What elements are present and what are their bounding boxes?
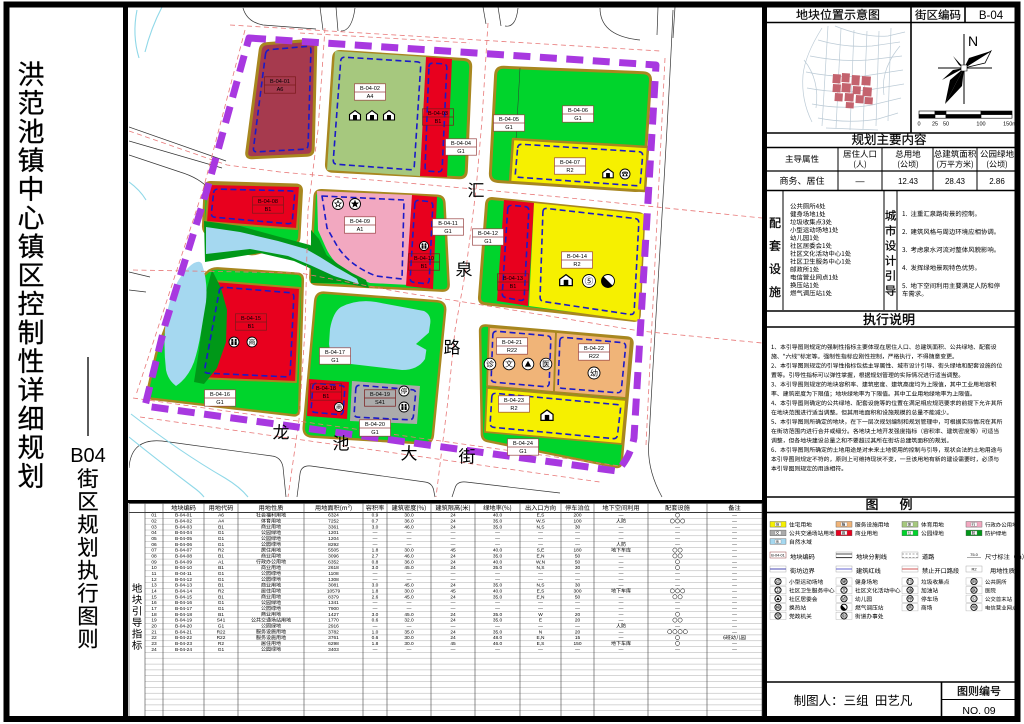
svg-text:—: — <box>732 572 737 577</box>
svg-text:G1: G1 <box>444 229 451 235</box>
svg-text:09: 09 <box>151 559 157 565</box>
svg-text:—: — <box>407 578 412 583</box>
svg-text:B1: B1 <box>435 119 442 125</box>
svg-text:—: — <box>732 607 737 612</box>
svg-text:—: — <box>575 572 580 577</box>
svg-text:—: — <box>732 630 737 635</box>
svg-text:—: — <box>575 607 580 612</box>
svg-text:—: — <box>675 601 680 606</box>
svg-text:1201: 1201 <box>328 530 339 536</box>
svg-text:—: — <box>675 648 680 653</box>
svg-text:—: — <box>675 531 680 536</box>
svg-text:3782: 3782 <box>328 629 339 635</box>
svg-text:—: — <box>675 607 680 612</box>
svg-text:48.0: 48.0 <box>493 635 503 641</box>
svg-text:B-04-07: B-04-07 <box>175 548 192 554</box>
svg-text:3.0: 3.0 <box>372 583 379 589</box>
svg-text:—: — <box>732 590 737 595</box>
svg-text:B-04-14: B-04-14 <box>175 589 192 595</box>
svg-text:—: — <box>619 584 624 589</box>
svg-text:G1: G1 <box>371 430 378 436</box>
svg-text:—: — <box>675 543 680 548</box>
svg-text:—: — <box>619 514 624 519</box>
svg-text:0: 0 <box>917 122 920 128</box>
svg-text:B1: B1 <box>218 554 224 560</box>
svg-text:24: 24 <box>450 618 456 624</box>
svg-text:W,N: W,N <box>536 559 546 565</box>
svg-text:150: 150 <box>573 641 581 647</box>
svg-text:—: — <box>619 531 624 536</box>
svg-text:A6: A6 <box>218 513 224 519</box>
svg-text:—: — <box>732 555 737 560</box>
svg-text:—: — <box>538 543 543 548</box>
svg-text:B-04-07: B-04-07 <box>560 160 580 166</box>
svg-text:35.0: 35.0 <box>493 612 503 618</box>
svg-text:24: 24 <box>151 647 157 653</box>
svg-text:20: 20 <box>575 612 581 618</box>
svg-text:—: — <box>675 584 680 589</box>
svg-text:—: — <box>575 625 580 630</box>
svg-text:R22: R22 <box>507 348 517 354</box>
svg-text:B-04-11: B-04-11 <box>175 571 192 577</box>
svg-text:—: — <box>407 543 412 548</box>
svg-text:200: 200 <box>573 513 581 519</box>
svg-text:—: — <box>538 531 543 536</box>
svg-text:3403: 3403 <box>328 647 339 653</box>
svg-text:B-04-15: B-04-15 <box>241 316 261 322</box>
svg-text:B1: B1 <box>218 565 224 571</box>
svg-text:15: 15 <box>151 594 157 600</box>
svg-text:—: — <box>732 543 737 548</box>
svg-text:—: — <box>495 625 500 630</box>
svg-text:6324: 6324 <box>328 513 339 519</box>
svg-text:46.0: 46.0 <box>404 524 414 530</box>
svg-text:50: 50 <box>575 559 581 565</box>
svg-text:35.0: 35.0 <box>493 594 503 600</box>
svg-text:10579: 10579 <box>327 589 341 595</box>
svg-text:B-04-04: B-04-04 <box>451 141 471 147</box>
svg-text:50: 50 <box>943 122 949 128</box>
svg-text:—: — <box>675 572 680 577</box>
svg-text:—: — <box>451 648 456 653</box>
svg-text:—: — <box>619 595 624 600</box>
svg-text:B-04-19: B-04-19 <box>175 618 192 624</box>
svg-text:B1: B1 <box>265 207 272 213</box>
svg-text:2.6: 2.6 <box>372 594 379 600</box>
svg-text:B-04-02: B-04-02 <box>360 86 380 92</box>
svg-text:N,S: N,S <box>537 524 545 530</box>
svg-text:—: — <box>407 572 412 577</box>
svg-text:3361: 3361 <box>328 524 339 530</box>
svg-text:32.0: 32.0 <box>404 618 414 624</box>
svg-text:N,S: N,S <box>537 565 545 571</box>
svg-text:—: — <box>732 560 737 565</box>
svg-text:—: — <box>732 578 737 583</box>
svg-text:07: 07 <box>151 548 157 554</box>
svg-text:B-04-09: B-04-09 <box>175 559 192 565</box>
svg-text:R2: R2 <box>566 168 573 174</box>
svg-text:1341: 1341 <box>328 600 339 606</box>
svg-text:G1: G1 <box>574 116 581 122</box>
svg-text:12: 12 <box>151 577 157 583</box>
svg-text:B-04-21: B-04-21 <box>502 340 522 346</box>
svg-text:B1: B1 <box>510 284 517 290</box>
svg-text:1.8: 1.8 <box>372 548 379 554</box>
svg-text:B-04-03: B-04-03 <box>175 524 192 530</box>
svg-text:24: 24 <box>450 554 456 560</box>
svg-text:—: — <box>538 648 543 653</box>
svg-text:R22: R22 <box>217 635 226 641</box>
svg-text:—: — <box>732 648 737 653</box>
svg-text:—: — <box>619 601 624 606</box>
svg-text:G1: G1 <box>216 400 223 406</box>
svg-text:17: 17 <box>151 606 157 612</box>
svg-text:1204: 1204 <box>328 536 339 542</box>
svg-text:—: — <box>732 625 737 630</box>
svg-text:8379: 8379 <box>328 594 339 600</box>
svg-text:02: 02 <box>151 519 157 525</box>
svg-text:100: 100 <box>573 519 581 525</box>
svg-text:R2: R2 <box>573 262 580 268</box>
svg-text:E,N: E,N <box>537 635 546 641</box>
svg-text:—: — <box>451 607 456 612</box>
svg-text:40.0: 40.0 <box>493 548 503 554</box>
svg-text:45.0: 45.0 <box>404 594 414 600</box>
svg-text:G1: G1 <box>218 542 225 548</box>
svg-text:—: — <box>407 607 412 612</box>
svg-text:—: — <box>575 601 580 606</box>
svg-text:—: — <box>407 601 412 606</box>
svg-text:B-04-24: B-04-24 <box>175 647 192 653</box>
svg-text:30: 30 <box>575 565 581 571</box>
svg-text:13: 13 <box>151 583 157 589</box>
svg-text:05: 05 <box>151 536 157 542</box>
svg-text:G1: G1 <box>505 125 512 131</box>
svg-text:—: — <box>373 572 378 577</box>
svg-text:G1: G1 <box>218 536 225 542</box>
svg-text:S,E: S,E <box>537 548 545 554</box>
svg-text:—: — <box>538 607 543 612</box>
svg-text:E,S: E,S <box>537 589 545 595</box>
svg-text:B1: B1 <box>248 324 255 330</box>
svg-text:30.0: 30.0 <box>404 635 414 641</box>
svg-text:A4: A4 <box>367 94 374 100</box>
svg-text:B-04-14: B-04-14 <box>567 254 587 260</box>
svg-text:45.0: 45.0 <box>404 583 414 589</box>
svg-text:—: — <box>495 531 500 536</box>
svg-text:—: — <box>451 578 456 583</box>
svg-text:5505: 5505 <box>328 548 339 554</box>
svg-text:—: — <box>575 543 580 548</box>
svg-text:35.0: 35.0 <box>493 524 503 530</box>
svg-text:36.0: 36.0 <box>404 519 414 525</box>
svg-text:30: 30 <box>575 524 581 530</box>
svg-text:—: — <box>619 613 624 618</box>
svg-text:06: 06 <box>151 542 157 548</box>
svg-text:—: — <box>732 613 737 618</box>
svg-text:300: 300 <box>573 589 581 595</box>
svg-text:N,S: N,S <box>537 583 545 589</box>
svg-text:B1: B1 <box>218 612 224 618</box>
svg-text:0.6: 0.6 <box>372 635 379 641</box>
svg-text:2.7: 2.7 <box>372 554 379 560</box>
svg-text:—: — <box>732 619 737 624</box>
svg-text:100: 100 <box>976 122 985 128</box>
svg-text:B-04-20: B-04-20 <box>365 422 385 428</box>
svg-text:46.0: 46.0 <box>493 641 503 647</box>
svg-text:8292: 8292 <box>328 542 339 548</box>
svg-text:—: — <box>732 584 737 589</box>
svg-text:G1: G1 <box>218 530 225 536</box>
svg-text:1308: 1308 <box>328 577 339 583</box>
svg-text:—: — <box>619 537 624 542</box>
svg-text:—: — <box>407 625 412 630</box>
svg-text:R2: R2 <box>218 641 224 647</box>
svg-text:—: — <box>495 648 500 653</box>
svg-text:7900: 7900 <box>328 606 339 612</box>
svg-text:B-04-09: B-04-09 <box>350 219 370 225</box>
svg-text:B-04: B-04 <box>979 10 1004 22</box>
svg-text:—: — <box>373 531 378 536</box>
svg-text:—: — <box>538 572 543 577</box>
svg-text:B-04-21: B-04-21 <box>175 629 192 635</box>
svg-text:—: — <box>407 537 412 542</box>
svg-text:R2: R2 <box>971 567 977 572</box>
svg-text:N: N <box>968 33 978 49</box>
svg-text:28.43: 28.43 <box>945 177 966 186</box>
svg-text:—: — <box>619 560 624 565</box>
svg-text:B1: B1 <box>421 264 428 270</box>
svg-text:22: 22 <box>151 635 157 641</box>
svg-text:03: 03 <box>151 524 157 530</box>
svg-text:1.0: 1.0 <box>372 629 379 635</box>
svg-text:1770: 1770 <box>328 618 339 624</box>
svg-text:A6: A6 <box>277 87 284 93</box>
svg-text:24: 24 <box>450 635 456 641</box>
svg-text:NO. 09: NO. 09 <box>962 705 995 717</box>
svg-text:—: — <box>619 578 624 583</box>
svg-text:14: 14 <box>151 589 157 595</box>
svg-text:W: W <box>538 612 543 618</box>
svg-text:B-04-24: B-04-24 <box>513 441 533 447</box>
svg-text:—: — <box>495 572 500 577</box>
svg-text:—: — <box>451 572 456 577</box>
svg-text:—: — <box>619 572 624 577</box>
svg-text:R2: R2 <box>510 406 517 412</box>
svg-text:1108: 1108 <box>328 571 339 577</box>
svg-text:—: — <box>619 607 624 612</box>
svg-text:W,S: W,S <box>536 519 545 525</box>
svg-text:—: — <box>856 176 865 186</box>
svg-text:G1: G1 <box>218 606 225 612</box>
svg-text:B-04-16: B-04-16 <box>175 600 192 606</box>
svg-text:G1: G1 <box>218 577 225 583</box>
svg-text:25: 25 <box>932 122 938 128</box>
svg-text:B-04-17: B-04-17 <box>175 606 192 612</box>
svg-text:B-04-18: B-04-18 <box>175 612 192 618</box>
svg-text:46.0: 46.0 <box>404 554 414 560</box>
svg-text:B1: B1 <box>323 394 330 400</box>
svg-text:6352: 6352 <box>328 559 339 565</box>
svg-text:G1: G1 <box>484 239 491 245</box>
svg-text:3761: 3761 <box>328 635 339 641</box>
svg-text:30.0: 30.0 <box>404 548 414 554</box>
svg-text:E: E <box>539 618 542 624</box>
svg-text:B-04-19: B-04-19 <box>370 392 390 398</box>
svg-text:B-04-12: B-04-12 <box>478 231 498 237</box>
svg-text:3.0: 3.0 <box>372 565 379 571</box>
svg-text:B-04-11: B-04-11 <box>438 221 458 227</box>
svg-text:N: N <box>539 629 543 635</box>
svg-text:B-04-13: B-04-13 <box>175 583 192 589</box>
svg-text:0.8: 0.8 <box>372 559 379 565</box>
svg-text:B-04-05: B-04-05 <box>175 536 192 542</box>
svg-text:R22: R22 <box>217 629 226 635</box>
svg-text:45: 45 <box>450 641 456 647</box>
svg-text:—: — <box>373 543 378 548</box>
svg-text:R2: R2 <box>218 548 224 554</box>
svg-text:1427: 1427 <box>328 612 339 618</box>
svg-text:3096: 3096 <box>328 554 339 560</box>
svg-text:B-04-10: B-04-10 <box>175 565 192 571</box>
svg-text:24: 24 <box>450 524 456 530</box>
svg-text:—: — <box>451 537 456 542</box>
svg-text:35.0: 35.0 <box>493 554 503 560</box>
svg-text:36.0: 36.0 <box>404 559 414 565</box>
svg-text:S41: S41 <box>375 400 385 406</box>
svg-text:—: — <box>373 578 378 583</box>
svg-text:30: 30 <box>575 583 581 589</box>
svg-text:45.0: 45.0 <box>404 565 414 571</box>
svg-text:B-04-01: B-04-01 <box>771 554 785 558</box>
svg-text:B1: B1 <box>218 594 224 600</box>
svg-text:G1: G1 <box>218 647 225 653</box>
svg-text:19: 19 <box>151 618 157 624</box>
svg-text:—: — <box>451 531 456 536</box>
svg-text:—: — <box>619 566 624 571</box>
svg-text:24: 24 <box>450 612 456 618</box>
svg-text:—: — <box>407 648 412 653</box>
svg-text:20: 20 <box>151 624 157 630</box>
svg-text:B-04-06: B-04-06 <box>175 542 192 548</box>
svg-text:—: — <box>373 607 378 612</box>
svg-text:—: — <box>538 578 543 583</box>
svg-text:16: 16 <box>151 600 157 606</box>
svg-text:—: — <box>495 601 500 606</box>
svg-text:24: 24 <box>450 513 456 519</box>
svg-text:—: — <box>732 525 737 530</box>
svg-text:G1: G1 <box>218 600 225 606</box>
svg-text:01: 01 <box>151 513 157 519</box>
svg-text:6298: 6298 <box>328 641 339 647</box>
svg-text:B-04-12: B-04-12 <box>175 577 192 583</box>
svg-text:18: 18 <box>151 612 157 618</box>
svg-text:40.0: 40.0 <box>493 559 503 565</box>
svg-text:1.8: 1.8 <box>372 641 379 647</box>
svg-text:A1: A1 <box>218 559 224 565</box>
svg-text:—: — <box>407 531 412 536</box>
svg-text:A1: A1 <box>357 227 364 233</box>
svg-text:E,N: E,N <box>537 594 546 600</box>
svg-text:—: — <box>619 619 624 624</box>
svg-text:150m: 150m <box>1003 122 1017 128</box>
svg-text:50: 50 <box>575 594 581 600</box>
svg-text:B-04-13: B-04-13 <box>503 276 523 282</box>
svg-text:R2: R2 <box>218 589 224 595</box>
svg-text:24: 24 <box>450 594 456 600</box>
svg-text:—: — <box>732 642 737 647</box>
svg-text:—: — <box>675 625 680 630</box>
svg-text:—: — <box>495 537 500 542</box>
svg-text:04: 04 <box>151 530 157 536</box>
svg-text:S41: S41 <box>217 618 226 624</box>
svg-text:15: 15 <box>575 635 581 641</box>
svg-text:75.0: 75.0 <box>970 552 979 557</box>
svg-text:—: — <box>732 595 737 600</box>
svg-text:—: — <box>619 525 624 530</box>
svg-text:35.0: 35.0 <box>493 565 503 571</box>
svg-text:—: — <box>495 607 500 612</box>
svg-text:3081: 3081 <box>328 583 339 589</box>
svg-text:B-04-23: B-04-23 <box>504 398 524 404</box>
svg-text:—: — <box>619 630 624 635</box>
svg-text:G1: G1 <box>519 449 526 455</box>
svg-text:35.0: 35.0 <box>493 583 503 589</box>
svg-text:2916: 2916 <box>328 624 339 630</box>
svg-text:30.0: 30.0 <box>404 589 414 595</box>
svg-text:—: — <box>451 625 456 630</box>
svg-text:—: — <box>495 578 500 583</box>
svg-text:B-04-08: B-04-08 <box>258 199 278 205</box>
svg-text:B-04-05: B-04-05 <box>499 117 519 123</box>
svg-text:B-04-15: B-04-15 <box>175 594 192 600</box>
svg-text:—: — <box>732 566 737 571</box>
svg-text:35.0: 35.0 <box>493 618 503 624</box>
svg-text:B-04-22: B-04-22 <box>584 346 604 352</box>
svg-text:—: — <box>619 636 624 641</box>
svg-text:10: 10 <box>151 565 157 571</box>
svg-text:—: — <box>732 531 737 536</box>
svg-text:—: — <box>373 648 378 653</box>
svg-text:B-04-17: B-04-17 <box>325 350 345 356</box>
svg-text:E,S: E,S <box>537 513 545 519</box>
svg-text:B-04-22: B-04-22 <box>175 635 192 641</box>
svg-text:—: — <box>619 648 624 653</box>
svg-text:12.43: 12.43 <box>898 177 919 186</box>
svg-text:B-04-01: B-04-01 <box>175 513 192 519</box>
svg-text:E,N: E,N <box>537 554 546 560</box>
svg-text:23: 23 <box>151 641 157 647</box>
svg-text:20: 20 <box>575 629 581 635</box>
svg-text:G1: G1 <box>457 149 464 155</box>
svg-text:30.0: 30.0 <box>404 641 414 647</box>
svg-text:—: — <box>373 537 378 542</box>
svg-text:7252: 7252 <box>328 519 339 525</box>
svg-text:2618: 2618 <box>328 565 339 571</box>
svg-text:—: — <box>675 578 680 583</box>
svg-text:—: — <box>373 601 378 606</box>
svg-text:—: — <box>575 531 580 536</box>
svg-text:3.0: 3.0 <box>372 524 379 530</box>
svg-text:24: 24 <box>450 583 456 589</box>
svg-text:08: 08 <box>151 554 157 560</box>
svg-text:35.0: 35.0 <box>404 629 414 635</box>
svg-text:B-04-01: B-04-01 <box>270 79 290 85</box>
svg-text:30.0: 30.0 <box>404 513 414 519</box>
svg-text:0.6: 0.6 <box>372 618 379 624</box>
svg-text:—: — <box>538 625 543 630</box>
svg-text:B-04-02: B-04-02 <box>175 519 192 525</box>
